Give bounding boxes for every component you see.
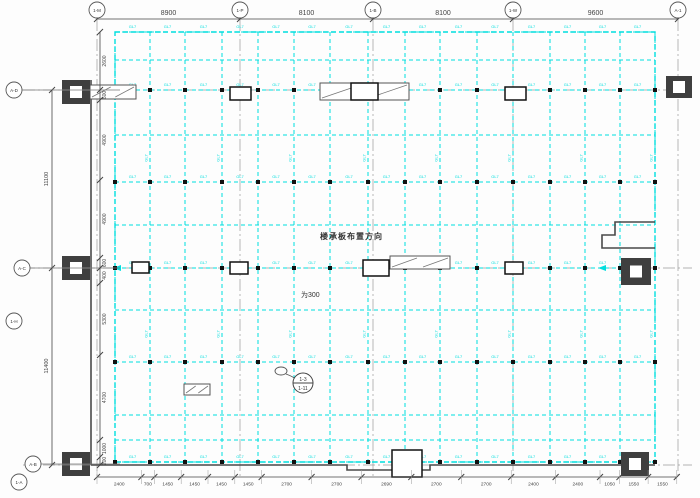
beam-label: GL7	[144, 153, 149, 161]
beam-label: GL7	[599, 354, 607, 359]
column-open	[505, 87, 526, 100]
beam-plate	[390, 256, 450, 269]
axis-bubble-label: A-1	[674, 8, 682, 13]
beam-node	[148, 88, 152, 92]
beam-node	[256, 266, 260, 270]
beam-label: GL7	[308, 260, 316, 265]
beam-label: GL7	[129, 454, 137, 459]
beam-label: GL7	[455, 454, 463, 459]
column-open	[351, 83, 378, 100]
beam-node	[113, 180, 117, 184]
beam-plate	[184, 384, 210, 395]
beam-label: GL7	[528, 24, 536, 29]
dimension-label: 1050	[604, 482, 615, 488]
beam-node	[183, 180, 187, 184]
beam-node	[475, 180, 479, 184]
callout-bottom-label: 1-11	[298, 386, 308, 392]
beam-node	[256, 360, 260, 364]
floor-plan-drawing: GL7GL7GL7GL7GL7GL7GL7GL7GL7GL7GL7GL7GL7G…	[0, 0, 700, 498]
dimension-label: 2700	[331, 482, 342, 488]
beam-label: GL7	[634, 24, 642, 29]
beam-label: GL7	[129, 174, 137, 179]
beam-node	[328, 266, 332, 270]
beam-node	[366, 180, 370, 184]
beam-label: GL7	[216, 153, 221, 161]
beam-node	[220, 460, 224, 464]
dimension-label: 2700	[431, 482, 442, 488]
beam-label: GL7	[434, 329, 439, 337]
beam-node	[618, 88, 622, 92]
beam-label: GL7	[419, 174, 427, 179]
dimension-label: 4900	[102, 213, 108, 224]
axis-bubble-label: 1-P	[236, 8, 243, 13]
beam-label: GL7	[164, 260, 172, 265]
beam-label: GL7	[308, 174, 316, 179]
deck-direction-annotation: 楼承板布置方向	[320, 231, 383, 242]
beam-node	[220, 180, 224, 184]
dimension-label: 600	[102, 91, 108, 100]
column-open	[363, 260, 389, 276]
beam-node	[256, 460, 260, 464]
beam-label: GL7	[288, 153, 293, 161]
beam-node	[511, 180, 515, 184]
beam-node	[653, 460, 657, 464]
beam-node	[256, 180, 260, 184]
beam-label: GL7	[599, 454, 607, 459]
axis-bubble-label: 1-A	[15, 480, 22, 485]
dimension-label: 4900	[102, 134, 108, 145]
axis-bubble-label: 1-W	[509, 8, 518, 13]
beam-node	[113, 360, 117, 364]
dimension-label: 2400	[572, 482, 583, 488]
dimension-label: 400	[102, 271, 108, 280]
beam-label: GL7	[383, 24, 391, 29]
beam-label: GL7	[272, 454, 280, 459]
beam-label: GL7	[345, 260, 353, 265]
dimension-label: 1450	[162, 482, 173, 488]
beam-node	[403, 360, 407, 364]
beam-label: GL7	[200, 24, 208, 29]
beam-node	[366, 360, 370, 364]
column-open	[392, 450, 422, 477]
beam-label: GL7	[200, 82, 208, 87]
beam-label: GL7	[200, 454, 208, 459]
beam-node	[548, 460, 552, 464]
dimension-label: 1450	[243, 482, 254, 488]
beam-label: GL7	[564, 354, 572, 359]
dimension-label: 11100	[44, 172, 50, 186]
beam-label: GL7	[236, 174, 244, 179]
beam-node	[113, 460, 117, 464]
beam-label: GL7	[272, 260, 280, 265]
dimension-label: 5300	[102, 313, 108, 324]
beam-label: GL7	[528, 174, 536, 179]
beam-node	[292, 360, 296, 364]
beam-label: GL7	[362, 329, 367, 337]
dimension-label: 700	[144, 482, 152, 488]
plan-canvas: GL7GL7GL7GL7GL7GL7GL7GL7GL7GL7GL7GL7GL7G…	[0, 0, 700, 498]
beam-label: GL7	[308, 82, 316, 87]
beam-label: GL7	[491, 82, 499, 87]
beam-node	[475, 88, 479, 92]
beam-node	[183, 266, 187, 270]
beam-label: GL7	[564, 174, 572, 179]
beam-label: GL7	[272, 354, 280, 359]
beam-node	[438, 460, 442, 464]
beam-node	[511, 360, 515, 364]
beam-node	[328, 180, 332, 184]
beam-node	[618, 360, 622, 364]
beam-node	[292, 460, 296, 464]
beam-node	[438, 360, 442, 364]
beam-label: GL7	[507, 153, 512, 161]
beam-node	[583, 266, 587, 270]
beam-node	[256, 88, 260, 92]
dimension-label: 8100	[299, 10, 315, 17]
beam-node	[583, 88, 587, 92]
beam-label: GL7	[383, 354, 391, 359]
beam-label: GL7	[528, 454, 536, 459]
dimension-label: 600	[102, 259, 108, 268]
beam-node	[183, 360, 187, 364]
beam-label: GL7	[129, 24, 137, 29]
beam-label: GL7	[564, 260, 572, 265]
beam-label: GL7	[308, 354, 316, 359]
beam-label: GL7	[634, 174, 642, 179]
beam-label: GL7	[455, 82, 463, 87]
beam-node	[438, 88, 442, 92]
beam-label: GL7	[564, 454, 572, 459]
beam-label: GL7	[455, 354, 463, 359]
beam-label: GL7	[564, 82, 572, 87]
beam-label: GL7	[200, 260, 208, 265]
beam-label: GL7	[634, 82, 642, 87]
beam-plate	[90, 85, 136, 99]
beam-node	[220, 88, 224, 92]
beam-label: GL7	[599, 82, 607, 87]
beam-label: GL7	[362, 153, 367, 161]
beam-label: GL7	[491, 174, 499, 179]
wall-outline	[602, 222, 655, 248]
beam-label: GL7	[272, 174, 280, 179]
callout-top-label: 1-3	[299, 377, 306, 383]
beam-label: GL7	[164, 354, 172, 359]
beam-label: GL7	[308, 454, 316, 459]
beam-label: GL7	[419, 24, 427, 29]
axis-bubble-label: 1-B	[369, 8, 376, 13]
dimension-label: 8900	[161, 10, 177, 17]
beam-label: GL7	[649, 329, 654, 337]
callout-cloud	[275, 367, 287, 375]
beam-label: GL7	[200, 354, 208, 359]
beam-label: GL7	[419, 82, 427, 87]
dimension-label: 11400	[44, 359, 50, 374]
beam-node	[653, 360, 657, 364]
axis-bubble-label: A-B	[29, 462, 37, 467]
dimension-label: 2600	[102, 55, 108, 66]
beam-label: GL7	[164, 24, 172, 29]
beam-label: GL7	[164, 174, 172, 179]
beam-node	[292, 88, 296, 92]
column-core	[630, 266, 642, 278]
beam-label: GL7	[216, 329, 221, 337]
dimension-label: 4700	[102, 392, 108, 403]
dimension-label: 1550	[657, 482, 668, 488]
beam-label: GL7	[528, 354, 536, 359]
beam-node	[583, 460, 587, 464]
dimension-label: 1550	[628, 482, 639, 488]
beam-label: GL7	[236, 454, 244, 459]
beam-label: GL7	[491, 354, 499, 359]
beam-label: GL7	[236, 354, 244, 359]
dimension-label: 8100	[435, 10, 451, 17]
beam-label: GL7	[491, 24, 499, 29]
beam-label: GL7	[236, 24, 244, 29]
beam-node	[618, 180, 622, 184]
beam-label: GL7	[455, 174, 463, 179]
beam-direction-arrow	[598, 265, 606, 271]
axis-bubble-label: 1-H	[10, 319, 17, 324]
column-open	[505, 262, 523, 274]
column-open	[132, 262, 149, 273]
beam-label: GL7	[345, 24, 353, 29]
column-open	[230, 87, 251, 100]
beam-label: GL7	[634, 354, 642, 359]
beam-node	[548, 180, 552, 184]
beam-label: GL7	[455, 24, 463, 29]
beam-node	[183, 460, 187, 464]
axis-bubble-label: 1-M	[93, 8, 101, 13]
axis-bubbles: 1-M1-P1-B1-WA-1A-DA-C1-HA-B1-A	[6, 2, 686, 490]
columns	[62, 76, 692, 477]
beam-node	[475, 266, 479, 270]
beam-label: GL7	[491, 454, 499, 459]
beam-node	[583, 180, 587, 184]
beam-node	[653, 266, 657, 270]
beam-label: GL7	[200, 174, 208, 179]
beam-label: GL7	[599, 24, 607, 29]
axis-bubble-label: A-C	[18, 266, 27, 271]
beam-node	[328, 460, 332, 464]
bottom-dimension-chain: 2400700145014501450145027002700269027002…	[94, 470, 680, 488]
beam-node	[475, 460, 479, 464]
dimension-label: 200	[102, 457, 108, 466]
beam-node	[366, 460, 370, 464]
beam-label: GL7	[164, 82, 172, 87]
beam-label: GL7	[419, 354, 427, 359]
beam-label: GL7	[564, 24, 572, 29]
column-core	[70, 86, 82, 98]
dimension-label: 2400	[114, 482, 125, 488]
beam-label: GL7	[345, 354, 353, 359]
thickness-annotation: 为300	[301, 290, 320, 300]
column-core	[629, 458, 641, 470]
beam-node	[292, 180, 296, 184]
beam-node	[548, 266, 552, 270]
beam-label: GL7	[579, 153, 584, 161]
column-core	[673, 81, 685, 93]
dimension-label: 2400	[528, 482, 539, 488]
beam-node	[292, 266, 296, 270]
beam-node	[328, 360, 332, 364]
dimension-label: 1450	[216, 482, 227, 488]
beam-node	[148, 460, 152, 464]
dimension-label: 1000	[102, 443, 108, 454]
beam-label: GL7	[434, 153, 439, 161]
beam-node	[475, 360, 479, 364]
beam-label: GL7	[491, 260, 499, 265]
beam-node	[548, 88, 552, 92]
beam-label: GL7	[579, 329, 584, 337]
beam-label: GL7	[345, 174, 353, 179]
beam-node	[220, 360, 224, 364]
beam-plates	[90, 83, 450, 395]
dimension-label: 2690	[381, 482, 392, 488]
beam-label: GL7	[288, 329, 293, 337]
beam-label: GL7	[649, 153, 654, 161]
dimension-label: 2700	[281, 482, 292, 488]
dimension-label: 1450	[189, 482, 200, 488]
top-dimension-chain: 8900810081009600	[94, 10, 681, 22]
beam-label: GL7	[164, 454, 172, 459]
beam-label: GL7	[144, 329, 149, 337]
beam-label: GL7	[383, 174, 391, 179]
beam-label: GL7	[345, 454, 353, 459]
beam-label: GL7	[383, 454, 391, 459]
beam-node	[183, 88, 187, 92]
beam-node	[653, 88, 657, 92]
beam-label: GL7	[528, 82, 536, 87]
beam-label: GL7	[507, 329, 512, 337]
dimension-label: 2700	[481, 482, 492, 488]
column-open	[230, 262, 248, 274]
beam-node	[438, 180, 442, 184]
beam-node	[511, 460, 515, 464]
beam-label: GL7	[129, 354, 137, 359]
beam-node	[548, 360, 552, 364]
beam-label: GL7	[308, 24, 316, 29]
axis-bubble-label: A-D	[10, 88, 19, 93]
beam-label: GL7	[599, 174, 607, 179]
beam-node	[148, 360, 152, 364]
beam-node	[653, 180, 657, 184]
beam-label: GL7	[599, 260, 607, 265]
beam-label: GL7	[528, 260, 536, 265]
beam-node	[148, 180, 152, 184]
beam-label: GL7	[455, 260, 463, 265]
beam-node	[403, 180, 407, 184]
dimension-label: 9600	[588, 10, 604, 17]
beam-label: GL7	[272, 24, 280, 29]
beam-node	[220, 266, 224, 270]
beam-node	[583, 360, 587, 364]
beam-label: GL7	[272, 82, 280, 87]
